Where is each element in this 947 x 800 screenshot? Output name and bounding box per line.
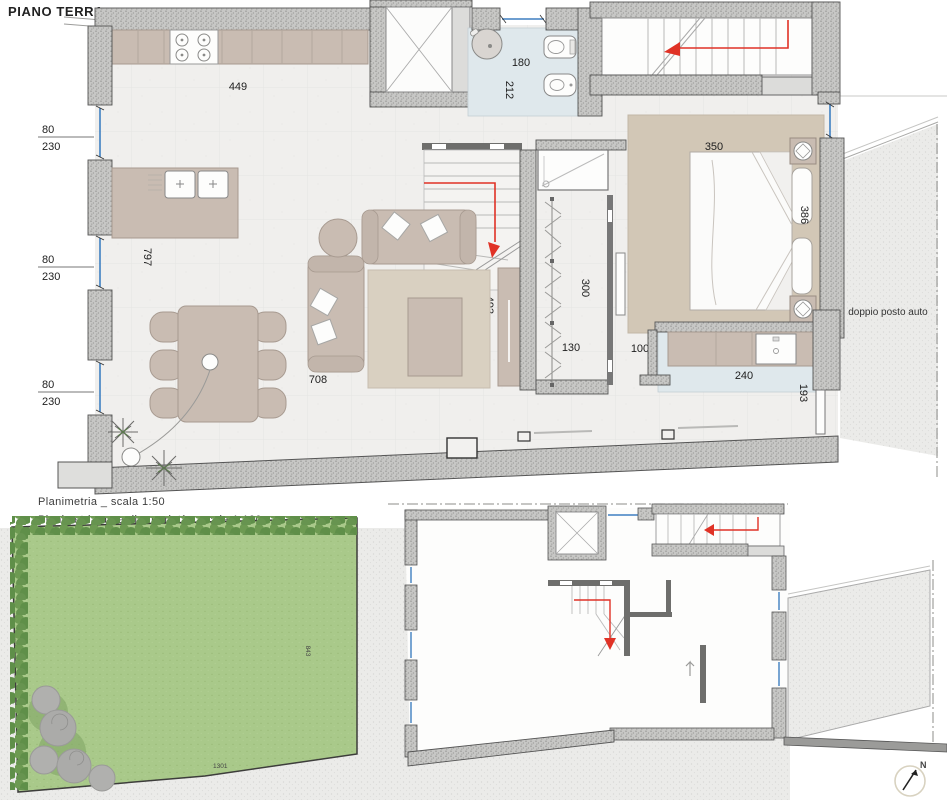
site-driveway <box>784 560 947 752</box>
svg-text:80: 80 <box>42 254 54 266</box>
garden: 843 1301 <box>10 516 357 792</box>
caption-plan-scale: Planimetria _ scala 1:50 <box>38 496 165 508</box>
svg-text:80: 80 <box>42 124 54 136</box>
carport-area <box>840 96 947 478</box>
pillow <box>792 238 812 294</box>
site-bottom-wall <box>610 728 774 740</box>
carport-label: doppio posto auto <box>848 307 928 318</box>
stove-icon <box>170 30 218 64</box>
elevator-shaft <box>370 0 472 107</box>
dim-closet-w: 130 <box>562 342 580 354</box>
bidet-icon <box>544 74 576 96</box>
svg-text:230: 230 <box>42 396 60 408</box>
window-dim-3: 80 230 <box>38 379 94 408</box>
bedroom <box>628 92 844 338</box>
kitchen-island <box>112 168 238 238</box>
planter-icon <box>122 448 140 466</box>
sofa-horizontal <box>362 210 476 264</box>
site-wall-stub <box>638 508 654 520</box>
dim-laundry-d: 193 <box>797 384 809 402</box>
site-top-wall <box>405 510 550 520</box>
page-title: PIANO TERRA <box>8 4 104 19</box>
svg-text:80: 80 <box>42 379 54 391</box>
north-label: N <box>920 760 927 770</box>
external-stair <box>590 2 840 95</box>
sliding-track <box>607 195 613 385</box>
closet-bottom-wall <box>536 380 608 394</box>
left-plinth <box>58 462 112 488</box>
window-dim-2: 80 230 <box>38 254 94 283</box>
coffee-table <box>408 298 462 376</box>
floorplan-sheet: doppio posto auto PIANO TERRA 449 <box>0 0 947 800</box>
svg-text:230: 230 <box>42 271 60 283</box>
divider-wall <box>520 150 536 390</box>
wc-icon <box>544 36 576 58</box>
dim-garden-d: 843 <box>304 646 311 657</box>
site-right-wall <box>772 556 786 738</box>
dim-laundry-w: 240 <box>735 370 753 382</box>
site-elevator <box>548 506 606 560</box>
laundry-sink-icon <box>756 334 796 364</box>
dim-kitchen: 449 <box>229 81 247 93</box>
plan-canvas: doppio posto auto PIANO TERRA 449 <box>0 0 947 800</box>
dim-bed-rug: 350 <box>705 141 723 153</box>
closet-top-wall <box>536 140 626 150</box>
svg-text:230: 230 <box>42 141 60 153</box>
side-table <box>319 219 357 257</box>
dim-garden-w: 1301 <box>213 763 228 770</box>
dim-sofa: 708 <box>309 374 327 386</box>
window-dim-1: 80 230 <box>38 124 94 153</box>
pillar <box>447 438 477 458</box>
dim-bed: 386 <box>798 206 810 224</box>
dim-closet-l: 300 <box>579 279 591 297</box>
sofa-vertical <box>308 256 364 372</box>
dim-bath-w: 180 <box>512 57 530 69</box>
site-external-stair <box>652 504 784 556</box>
hedge-top <box>12 516 357 535</box>
entry-door <box>816 390 825 434</box>
dim-living: 797 <box>141 248 153 266</box>
north-arrow: N <box>895 760 927 796</box>
walkin-shower <box>538 150 608 190</box>
hedge-left <box>10 522 28 790</box>
sliding-door <box>616 253 625 315</box>
nightstand <box>790 138 816 164</box>
living-area <box>308 210 490 388</box>
dim-hall: 100 <box>631 343 649 355</box>
kitchen-top-wall <box>95 8 380 30</box>
bathroom <box>468 8 602 116</box>
dim-bath-d: 212 <box>503 81 515 99</box>
site-plan: 843 1301 <box>0 504 947 800</box>
kitchen-counter <box>112 30 368 64</box>
nightstand <box>790 296 816 322</box>
